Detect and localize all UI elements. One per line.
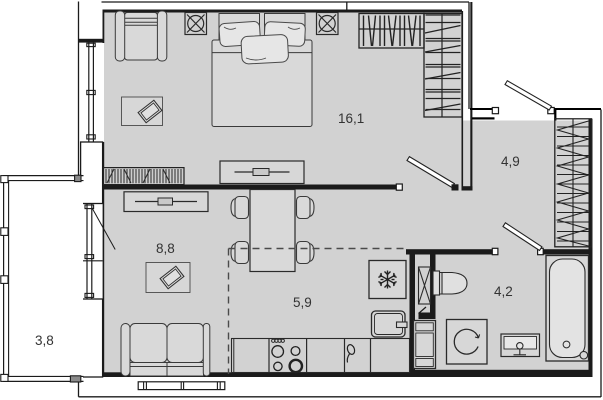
svg-text:8,8: 8,8	[156, 241, 175, 256]
svg-text:3,8: 3,8	[35, 333, 54, 348]
svg-text:4,2: 4,2	[494, 284, 513, 299]
svg-text:4,9: 4,9	[501, 154, 520, 169]
svg-text:5,9: 5,9	[293, 295, 312, 310]
svg-text:16,1: 16,1	[338, 111, 364, 126]
